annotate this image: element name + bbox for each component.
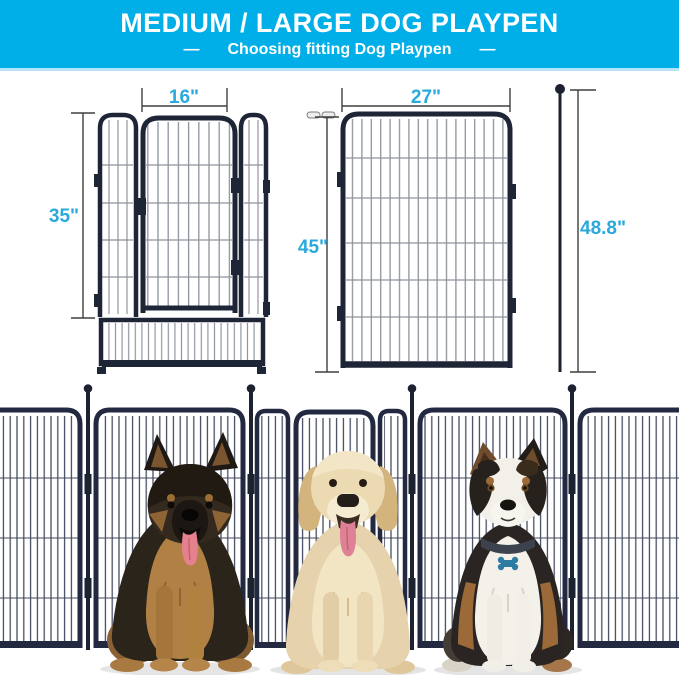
banner-title: MEDIUM / LARGE DOG PLAYPEN [0,9,679,39]
door-hinge [231,178,239,193]
playpen-photo [0,382,679,675]
door-panel-left-section [94,115,136,317]
standard-panel-diagram: 27" 45" [298,84,626,372]
connector-rod [408,384,417,650]
banner-separator [0,68,679,74]
subtitle-dash-left: — [184,41,200,59]
door-hinge [231,260,239,275]
door-panel-diagram: 16" 35" [49,87,270,374]
product-infographic: MEDIUM / LARGE DOG PLAYPEN — Choosing fi… [0,0,679,675]
banner: MEDIUM / LARGE DOG PLAYPEN — Choosing fi… [0,0,679,68]
door-latch [137,198,146,215]
panel-height-label: 35" [49,206,79,227]
banner-subtitle-row: — Choosing fitting Dog Playpen — [0,41,679,59]
door-panel-bottom-strip [97,320,266,374]
door-section [137,118,239,313]
connector-rod [568,384,577,650]
panel-width-label: 27" [411,87,441,108]
door-panel-right-section [241,115,270,317]
banner-subtitle: Choosing fitting Dog Playpen [228,41,452,59]
door-width-label: 16" [169,87,199,108]
panel-height-45-label: 45" [298,237,328,258]
standard-panel [337,114,516,368]
connector-rod [84,384,93,650]
panel-height-dimension-45: 45" [298,112,339,372]
fence-panel [580,410,679,648]
dimension-diagrams: 16" 35" [0,74,679,382]
fence-side-section [257,411,288,648]
overall-height-label: 48.8" [580,218,626,239]
panel-width-dimension: 27" [342,87,510,112]
connector-rod [247,384,256,650]
overall-height-dimension: 48.8" [555,84,626,372]
door-width-dimension: 16" [142,87,227,112]
subtitle-dash-right: — [479,41,495,59]
fence-panel [0,410,80,648]
panel-height-dimension: 35" [49,113,95,318]
ground-rod-ball [555,84,565,94]
